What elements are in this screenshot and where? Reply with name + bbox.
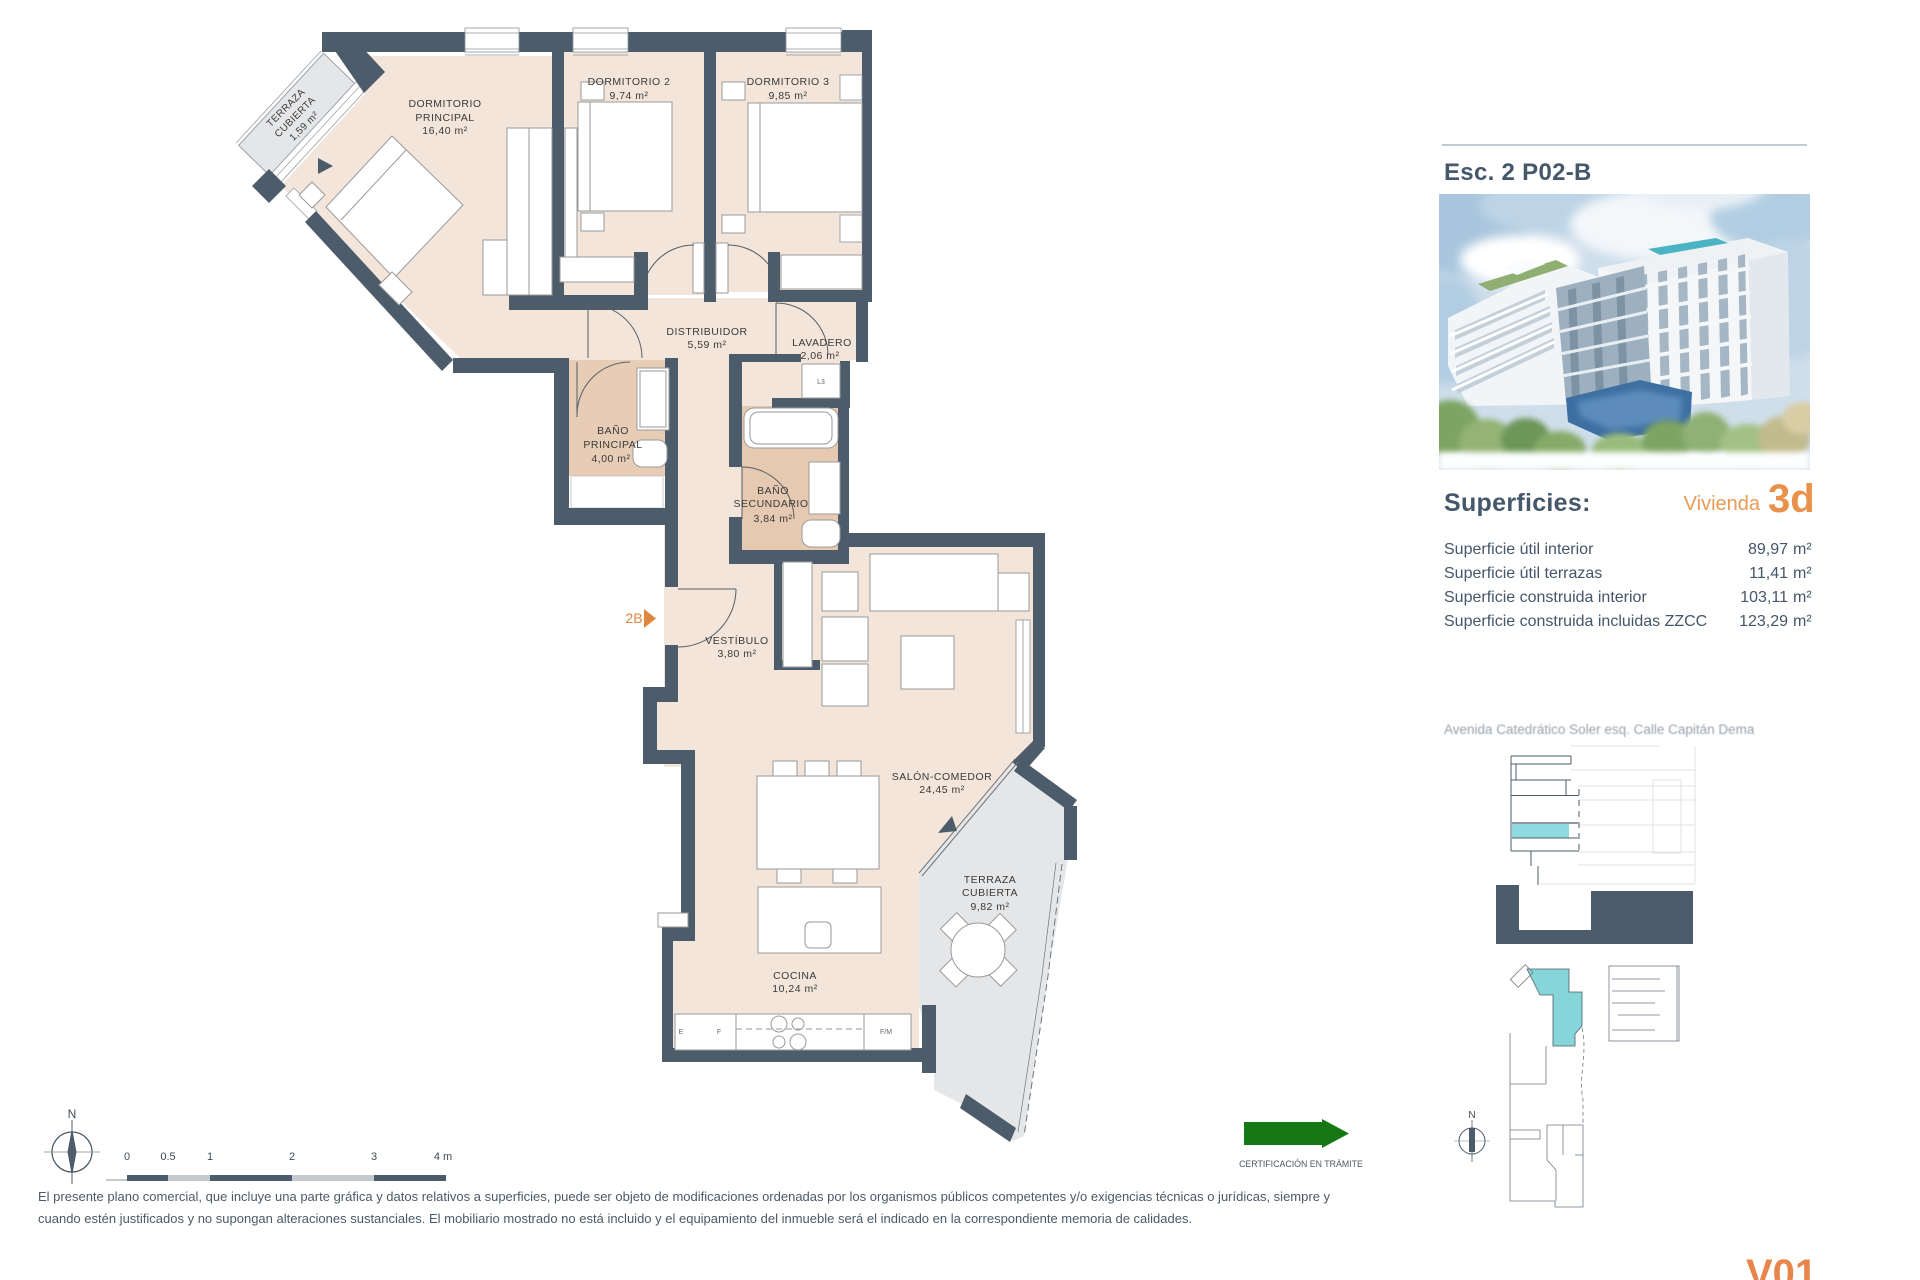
svg-text:cuando estén justificados y no: cuando estén justificados y no supongan … [38,1211,1192,1226]
svg-text:3: 3 [371,1151,377,1163]
svg-text:5,59 m²: 5,59 m² [687,339,726,351]
svg-text:9,82 m²: 9,82 m² [970,901,1009,913]
svg-text:Superficie útil terrazas: Superficie útil terrazas [1444,565,1602,582]
svg-text:Vivienda: Vivienda [1684,493,1761,515]
svg-text:4,00 m²: 4,00 m² [591,453,630,465]
svg-text:Superficies:: Superficies: [1444,489,1591,517]
svg-text:DISTRIBUIDOR: DISTRIBUIDOR [666,326,747,338]
svg-text:4 m: 4 m [434,1151,452,1163]
svg-text:V01: V01 [1746,1252,1817,1280]
svg-text:F: F [717,1029,721,1036]
svg-text:L3: L3 [817,379,825,386]
svg-text:123,29: 123,29 [1739,613,1788,630]
svg-text:CERTIFICACIÓN EN TRÁMITE: CERTIFICACIÓN EN TRÁMITE [1239,1159,1363,1169]
svg-text:m²: m² [1793,589,1812,606]
svg-text:24,45 m²: 24,45 m² [919,784,964,796]
svg-text:PRINCIPAL: PRINCIPAL [415,112,474,124]
svg-text:9,85 m²: 9,85 m² [768,90,807,102]
svg-text:m²: m² [1793,613,1812,630]
svg-text:16,40 m²: 16,40 m² [422,125,467,137]
svg-text:El presente plano comercial, q: El presente plano comercial, que incluye… [38,1189,1331,1204]
svg-text:2,06 m²: 2,06 m² [800,350,839,362]
svg-text:10,24 m²: 10,24 m² [772,983,817,995]
svg-text:0.5: 0.5 [160,1151,175,1163]
svg-text:BAÑO: BAÑO [597,424,629,437]
svg-text:SECUNDARIO: SECUNDARIO [733,498,808,510]
svg-text:LAVADERO: LAVADERO [792,337,852,349]
svg-text:CUBIERTA: CUBIERTA [962,887,1018,899]
svg-text:3,84 m²: 3,84 m² [753,513,792,525]
svg-text:TERRAZA: TERRAZA [964,874,1017,886]
svg-text:0: 0 [124,1151,130,1163]
svg-text:E: E [679,1029,684,1036]
svg-text:2B: 2B [625,610,642,626]
svg-text:N: N [1468,1110,1475,1121]
svg-text:11,41: 11,41 [1749,565,1788,582]
svg-text:VESTÍBULO: VESTÍBULO [705,634,768,647]
svg-text:Superficie construida incluida: Superficie construida incluidas ZZCC [1444,613,1707,630]
svg-text:m²: m² [1793,565,1812,582]
svg-text:N: N [68,1107,77,1121]
svg-text:DORMITORIO 3: DORMITORIO 3 [747,76,830,88]
svg-text:Superficie construida interior: Superficie construida interior [1444,589,1647,606]
svg-text:1: 1 [207,1151,213,1163]
svg-text:Avenida Catedrático Soler esq.: Avenida Catedrático Soler esq. Calle Cap… [1444,722,1755,737]
svg-text:Superficie útil interior: Superficie útil interior [1444,541,1594,558]
svg-text:PRINCIPAL: PRINCIPAL [583,439,642,451]
svg-text:2: 2 [289,1151,295,1163]
svg-text:m²: m² [1793,541,1812,558]
svg-text:DORMITORIO 2: DORMITORIO 2 [588,76,671,88]
svg-text:9,74 m²: 9,74 m² [609,90,648,102]
svg-text:3d: 3d [1768,477,1815,521]
svg-text:COCINA: COCINA [773,970,817,982]
svg-text:BAÑO: BAÑO [757,484,789,497]
svg-text:SALÓN-COMEDOR: SALÓN-COMEDOR [892,770,992,783]
svg-text:F/M: F/M [880,1029,892,1036]
svg-text:DORMITORIO: DORMITORIO [408,98,481,110]
svg-text:Esc. 2 P02-B: Esc. 2 P02-B [1444,159,1592,186]
svg-text:89,97: 89,97 [1748,541,1788,558]
svg-text:103,11: 103,11 [1740,589,1788,606]
svg-text:3,80 m²: 3,80 m² [717,648,756,660]
